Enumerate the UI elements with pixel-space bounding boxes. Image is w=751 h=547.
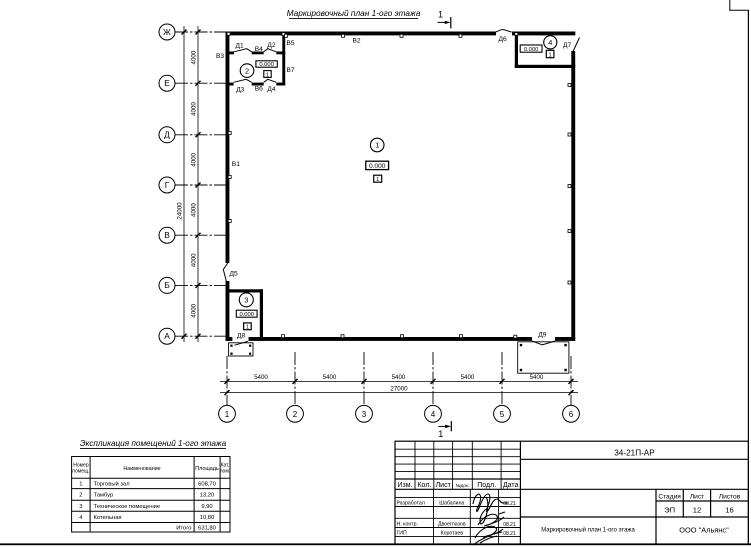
svg-text:13,20: 13,20	[200, 493, 215, 499]
svg-text:2: 2	[79, 493, 82, 499]
svg-text:ЭП: ЭП	[664, 506, 675, 515]
svg-text:1: 1	[549, 52, 552, 58]
svg-text:608,70: 608,70	[198, 482, 216, 488]
svg-text:Д3: Д3	[236, 87, 244, 94]
svg-text:В3: В3	[216, 53, 224, 60]
svg-text:1: 1	[376, 177, 379, 183]
svg-text:5400: 5400	[530, 374, 544, 381]
svg-text:Д1: Д1	[236, 43, 244, 50]
svg-text:08.21: 08.21	[503, 501, 516, 507]
svg-text:ООО "Альянс": ООО "Альянс"	[679, 526, 729, 535]
svg-text:Разработал: Разработал	[397, 501, 425, 507]
svg-text:08.21: 08.21	[503, 522, 516, 528]
svg-text:5400: 5400	[392, 374, 406, 381]
svg-text:В7: В7	[287, 67, 295, 74]
svg-text:1: 1	[438, 10, 443, 20]
svg-text:4000: 4000	[191, 203, 198, 217]
svg-text:1: 1	[438, 429, 443, 439]
svg-text:Коротаев: Коротаев	[441, 530, 464, 536]
svg-text:Лист: Лист	[690, 494, 704, 501]
svg-text:4: 4	[548, 38, 552, 47]
svg-text:4: 4	[431, 410, 436, 419]
svg-text:1: 1	[79, 482, 82, 488]
svg-text:5400: 5400	[254, 374, 268, 381]
svg-text:08.21: 08.21	[503, 531, 516, 537]
svg-text:ГИП: ГИП	[397, 530, 408, 536]
svg-text:3: 3	[362, 410, 367, 419]
svg-text:Д6: Д6	[499, 36, 507, 43]
svg-text:В: В	[164, 230, 170, 240]
svg-text:Д8: Д8	[237, 333, 245, 340]
svg-text:Котельная: Котельная	[94, 515, 122, 521]
svg-text:27000: 27000	[390, 385, 408, 392]
svg-text:Д: Д	[164, 130, 170, 140]
svg-text:Стадия: Стадия	[658, 494, 681, 501]
svg-text:Д7: Д7	[563, 42, 571, 49]
svg-text:Площадь: Площадь	[195, 466, 219, 472]
svg-text:4000: 4000	[191, 50, 198, 64]
svg-text:3: 3	[79, 504, 82, 510]
svg-text:5: 5	[500, 410, 505, 419]
svg-text:5400: 5400	[461, 374, 475, 381]
svg-text:Экспликация помещений 1-ого эт: Экспликация помещений 1-ого этажа	[80, 439, 227, 448]
svg-text:Двоеглазов: Двоеглазов	[438, 521, 466, 527]
svg-text:Подл.: Подл.	[477, 482, 496, 489]
svg-text:631,80: 631,80	[198, 526, 216, 532]
svg-text:помещ.: помещ.	[72, 469, 89, 475]
svg-text:пом.: пом.	[220, 469, 230, 475]
svg-text:Техническое помещение: Техническое помещение	[94, 504, 161, 510]
svg-text:1: 1	[266, 72, 269, 78]
svg-text:3: 3	[244, 296, 248, 305]
svg-text:Маркировочный план 1-ого этажа: Маркировочный план 1-ого этажа	[541, 526, 635, 533]
svg-text:Итого: Итого	[176, 526, 191, 532]
svg-text:Тамбур: Тамбур	[94, 493, 114, 499]
svg-text:Кол.: Кол.	[417, 482, 431, 489]
svg-text:16: 16	[725, 506, 733, 515]
svg-text:№док.: №док.	[456, 483, 469, 488]
svg-text:6: 6	[569, 410, 574, 419]
svg-text:0.000: 0.000	[259, 62, 274, 68]
svg-text:Е: Е	[164, 78, 170, 88]
svg-text:А: А	[164, 331, 170, 341]
svg-text:Д9: Д9	[538, 331, 546, 338]
svg-text:4000: 4000	[191, 253, 198, 267]
svg-text:4000: 4000	[191, 102, 198, 116]
svg-text:Д5: Д5	[230, 270, 238, 277]
svg-text:Маркировочный план 1-ого этажа: Маркировочный план 1-ого этажа	[287, 8, 421, 18]
svg-text:Торговый зал: Торговый зал	[94, 481, 130, 488]
svg-text:Лист: Лист	[436, 482, 452, 489]
svg-text:34-21П-АР: 34-21П-АР	[614, 449, 655, 458]
svg-text:Листов: Листов	[719, 494, 741, 501]
svg-text:В1: В1	[232, 161, 240, 168]
svg-text:2: 2	[245, 66, 249, 75]
svg-text:В6: В6	[255, 85, 263, 92]
svg-text:1: 1	[375, 141, 379, 150]
svg-text:Ж: Ж	[163, 27, 171, 37]
svg-text:4000: 4000	[191, 303, 198, 317]
svg-text:24000: 24000	[177, 202, 184, 220]
svg-text:1: 1	[246, 325, 249, 331]
svg-text:Д4: Д4	[267, 86, 275, 93]
svg-text:Шабалина: Шабалина	[439, 501, 464, 507]
svg-text:В5: В5	[287, 40, 295, 47]
svg-text:0.000: 0.000	[239, 312, 254, 318]
svg-text:10,80: 10,80	[200, 515, 215, 521]
svg-text:В2: В2	[353, 38, 361, 45]
svg-text:Н. контр.: Н. контр.	[397, 521, 418, 527]
svg-text:Д2: Д2	[267, 42, 275, 49]
svg-text:Г: Г	[165, 180, 170, 190]
svg-text:1: 1	[225, 410, 230, 419]
svg-text:2: 2	[293, 410, 298, 419]
svg-text:Б: Б	[164, 280, 170, 290]
svg-text:0.000: 0.000	[524, 47, 539, 53]
svg-text:4000: 4000	[191, 152, 198, 166]
svg-text:12: 12	[693, 506, 701, 515]
svg-text:Дата: Дата	[503, 482, 519, 489]
svg-text:Наименование: Наименование	[123, 466, 160, 472]
svg-text:9,90: 9,90	[201, 504, 212, 510]
svg-text:0.000: 0.000	[369, 163, 386, 170]
svg-text:Изм.: Изм.	[398, 482, 413, 489]
svg-text:5400: 5400	[323, 374, 337, 381]
svg-text:В4: В4	[255, 46, 263, 53]
